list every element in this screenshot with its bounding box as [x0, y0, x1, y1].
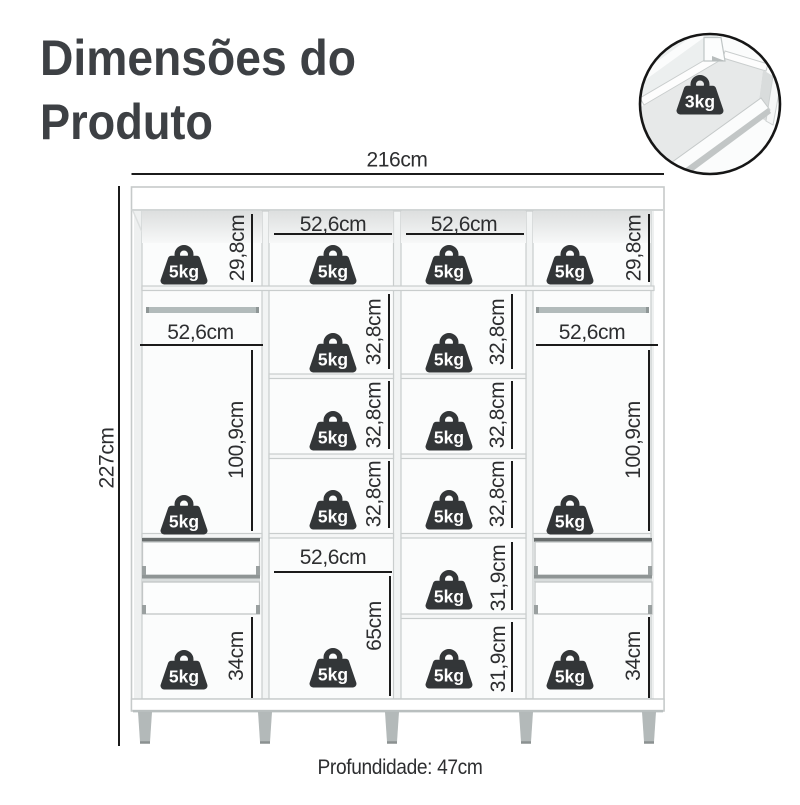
svg-text:216cm: 216cm — [366, 149, 427, 172]
svg-text:52,6cm: 52,6cm — [559, 321, 625, 344]
svg-text:Produto: Produto — [40, 94, 213, 150]
svg-text:52,6cm: 52,6cm — [431, 213, 497, 236]
svg-text:32,8cm: 32,8cm — [363, 461, 386, 527]
svg-text:52,6cm: 52,6cm — [167, 321, 233, 344]
svg-text:227cm: 227cm — [96, 427, 119, 488]
svg-text:32,8cm: 32,8cm — [486, 299, 509, 365]
svg-text:34cm: 34cm — [622, 631, 645, 681]
svg-text:31,9cm: 31,9cm — [487, 545, 510, 611]
svg-text:100,9cm: 100,9cm — [225, 401, 248, 479]
svg-text:32,8cm: 32,8cm — [363, 382, 386, 448]
svg-text:31,9cm: 31,9cm — [487, 626, 510, 692]
svg-text:29,8cm: 29,8cm — [226, 215, 249, 281]
svg-text:29,8cm: 29,8cm — [623, 215, 646, 281]
svg-text:32,8cm: 32,8cm — [486, 461, 509, 527]
svg-text:32,8cm: 32,8cm — [363, 299, 386, 365]
svg-text:52,6cm: 52,6cm — [300, 546, 366, 569]
svg-text:52,6cm: 52,6cm — [300, 213, 366, 236]
svg-text:Dimensões do: Dimensões do — [40, 30, 356, 86]
svg-text:32,8cm: 32,8cm — [486, 382, 509, 448]
svg-text:34cm: 34cm — [225, 631, 248, 681]
svg-text:100,9cm: 100,9cm — [622, 401, 645, 479]
svg-text:Profundidade: 47cm: Profundidade: 47cm — [318, 756, 483, 779]
svg-text:65cm: 65cm — [363, 601, 386, 651]
